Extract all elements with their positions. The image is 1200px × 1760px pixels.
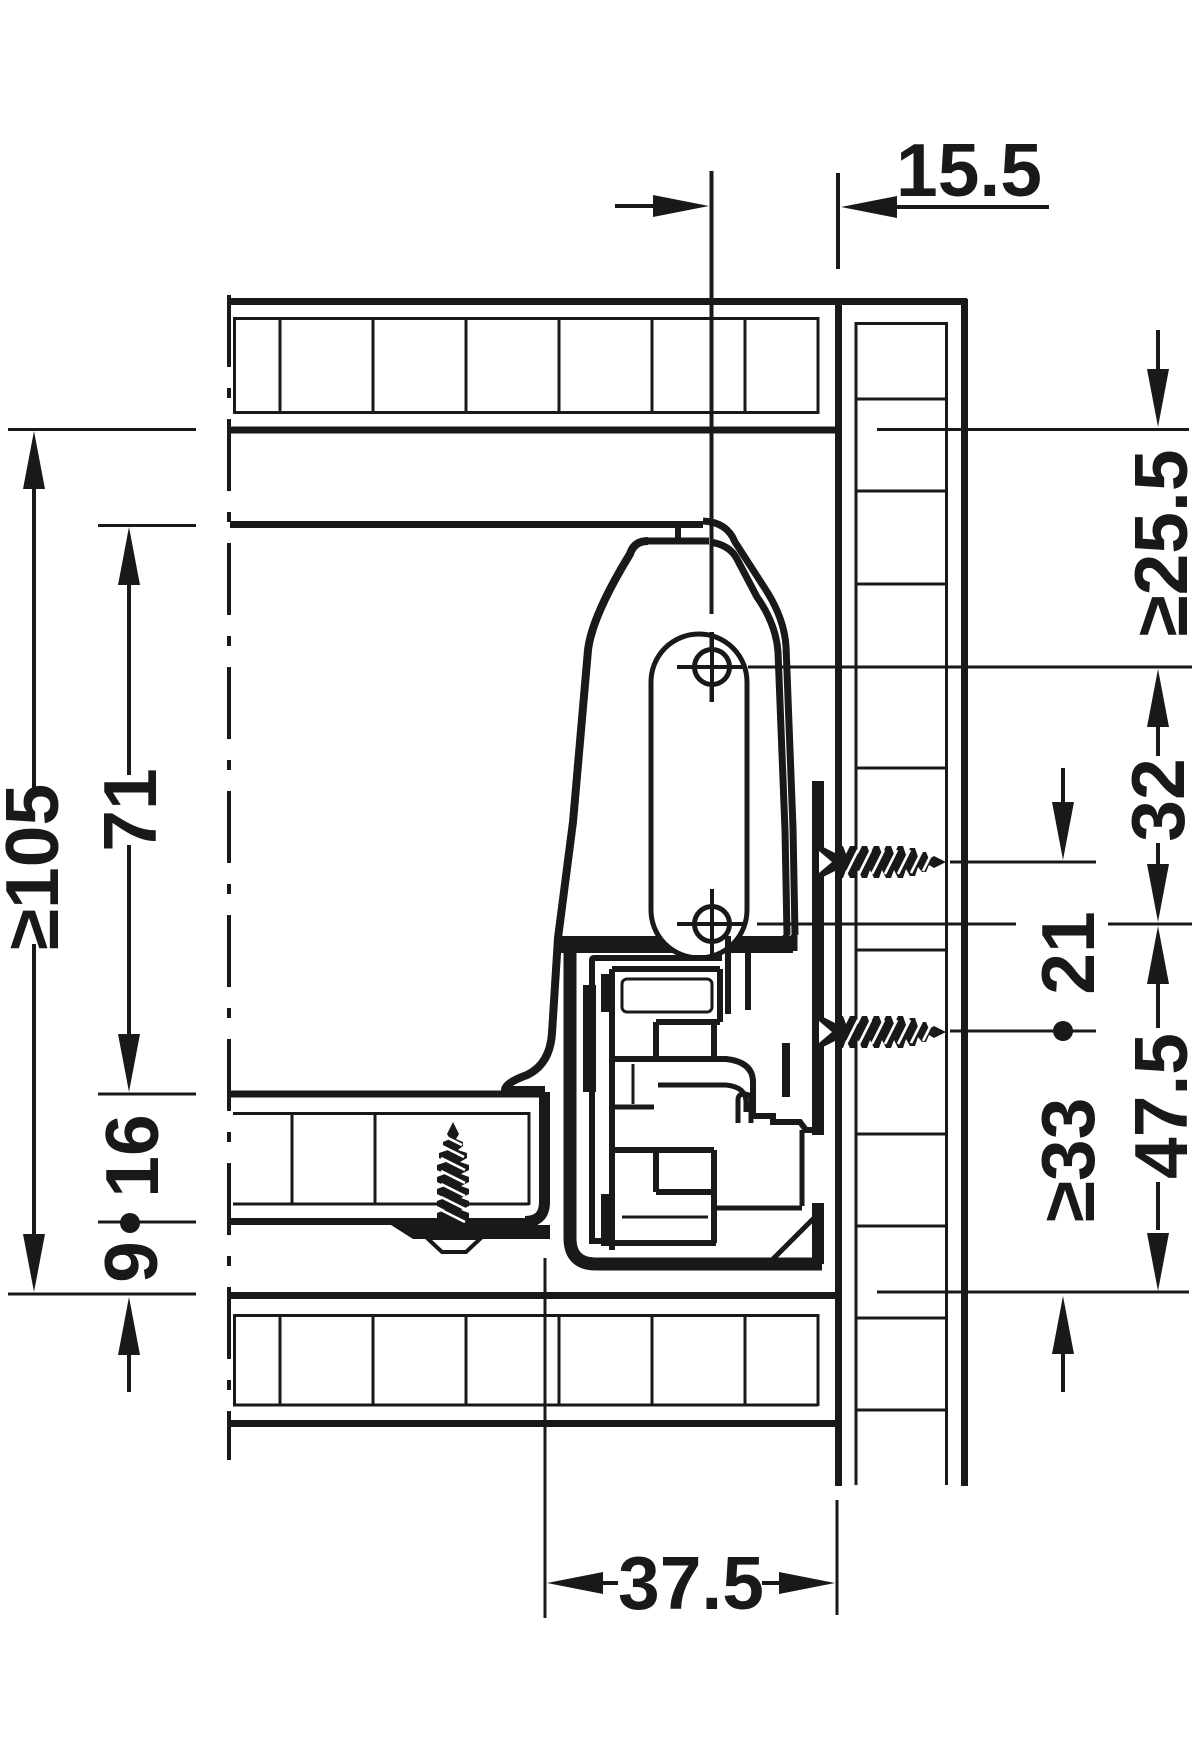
svg-text:≥33: ≥33 [1026,1098,1110,1223]
svg-text:32: 32 [1116,758,1200,841]
svg-text:≥25.5: ≥25.5 [1119,449,1200,636]
svg-text:37.5: 37.5 [618,1541,764,1625]
svg-text:21: 21 [1026,911,1110,994]
svg-text:71: 71 [88,768,172,851]
svg-text:≥105: ≥105 [0,784,74,950]
svg-text:16: 16 [90,1114,174,1197]
svg-text:15.5: 15.5 [896,128,1042,212]
svg-text:9: 9 [89,1241,173,1283]
svg-text:47.5: 47.5 [1119,1033,1200,1179]
